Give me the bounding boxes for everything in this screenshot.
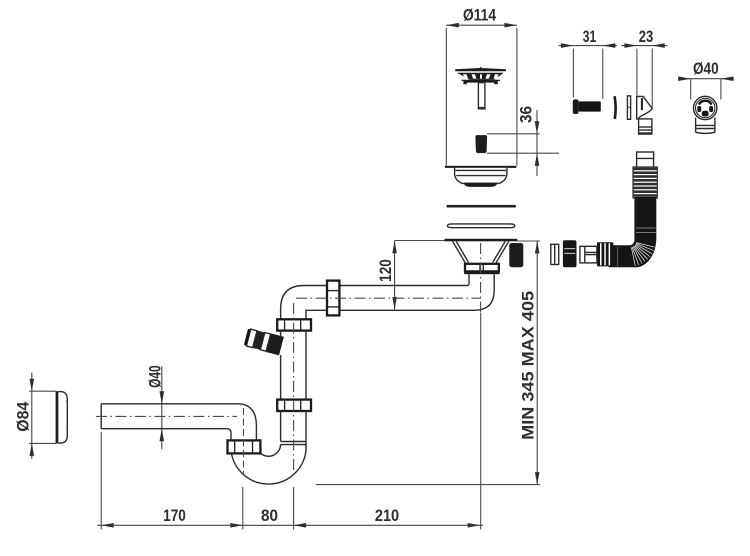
svg-text:120: 120 bbox=[376, 259, 395, 282]
svg-text:170: 170 bbox=[163, 506, 186, 525]
svg-text:210: 210 bbox=[375, 506, 399, 525]
svg-text:80: 80 bbox=[261, 506, 278, 525]
svg-text:Ø40: Ø40 bbox=[146, 365, 165, 388]
svg-text:Ø84: Ø84 bbox=[14, 401, 33, 432]
svg-text:Ø114: Ø114 bbox=[463, 6, 496, 25]
svg-text:31: 31 bbox=[583, 27, 597, 46]
svg-text:36: 36 bbox=[517, 106, 536, 123]
svg-text:MIN 345 MAX 405: MIN 345 MAX 405 bbox=[519, 291, 538, 440]
svg-text:23: 23 bbox=[639, 27, 654, 46]
svg-text:Ø40: Ø40 bbox=[693, 59, 719, 78]
